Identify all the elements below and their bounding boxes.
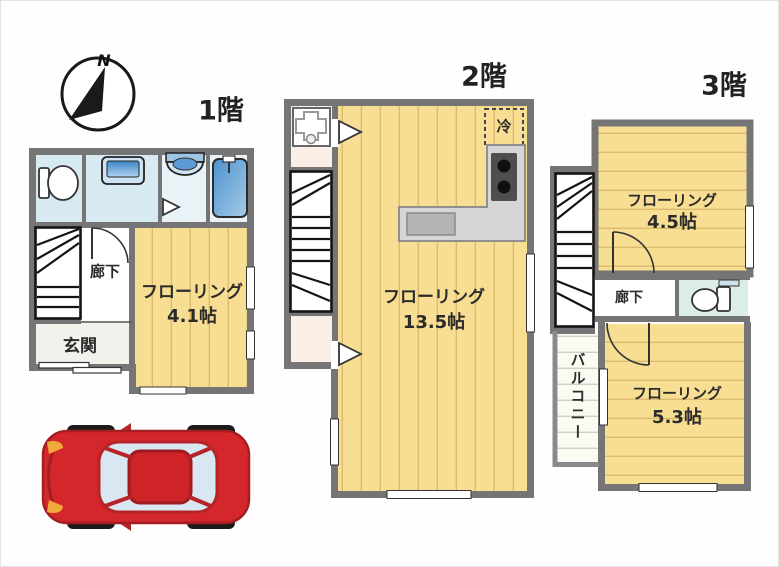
window [639, 484, 717, 492]
floor3-balcony-label: バルコニー [570, 352, 585, 442]
flooring-room-5-3-fill [604, 324, 748, 486]
window [527, 254, 535, 332]
floor2-refrigerator-label: 冷 [496, 120, 511, 135]
compass-north-label: N [97, 53, 110, 69]
window [600, 369, 608, 425]
window [331, 419, 339, 465]
washbasin-icon [166, 153, 204, 175]
floorplan-image: N 1階 2階 3階 フローリング 4.1帖 廊下 玄関 フローリング 13.5… [0, 0, 779, 567]
closet-fill [287, 314, 335, 366]
floor1-plan [29, 151, 255, 394]
floor3-room-a-name: フローリング [627, 194, 717, 209]
floor1-hallway-label: 廊下 [90, 265, 120, 280]
floor2-label: 2階 [461, 64, 507, 91]
car-icon [43, 423, 249, 531]
floor1-label: 1階 [198, 98, 244, 125]
floor1-room-size: 4.1帖 [167, 308, 217, 326]
floor3-room-a-size: 4.5帖 [647, 214, 697, 232]
floor2-room-size: 13.5帖 [403, 314, 465, 332]
floor1-room-name: フローリング [141, 285, 243, 302]
stove-icon [491, 153, 517, 201]
bathtub-icon [213, 156, 247, 217]
entrance-door [73, 368, 121, 374]
window [140, 387, 186, 394]
stairs-icon-2f [291, 172, 332, 312]
floor3-hallway-label: 廊下 [615, 291, 643, 305]
washing-machine-icon [293, 108, 330, 146]
stairs-icon-1f [36, 228, 81, 319]
floorplan-graphic [1, 1, 779, 567]
floor2-room-name: フローリング [383, 290, 485, 307]
sink-icon [407, 213, 455, 235]
floor3-room-b-name: フローリング [632, 387, 722, 402]
window [247, 267, 255, 309]
window [746, 206, 754, 268]
floor3-room-b-size: 5.3帖 [652, 409, 702, 427]
floor1-entrance-label: 玄関 [63, 339, 97, 356]
window [387, 491, 471, 499]
window [247, 331, 255, 359]
toilet-icon-1f [39, 166, 78, 200]
stairs-icon-3f [556, 174, 594, 327]
floor3-label: 3階 [701, 73, 747, 100]
laundry-pan-icon [102, 157, 144, 184]
